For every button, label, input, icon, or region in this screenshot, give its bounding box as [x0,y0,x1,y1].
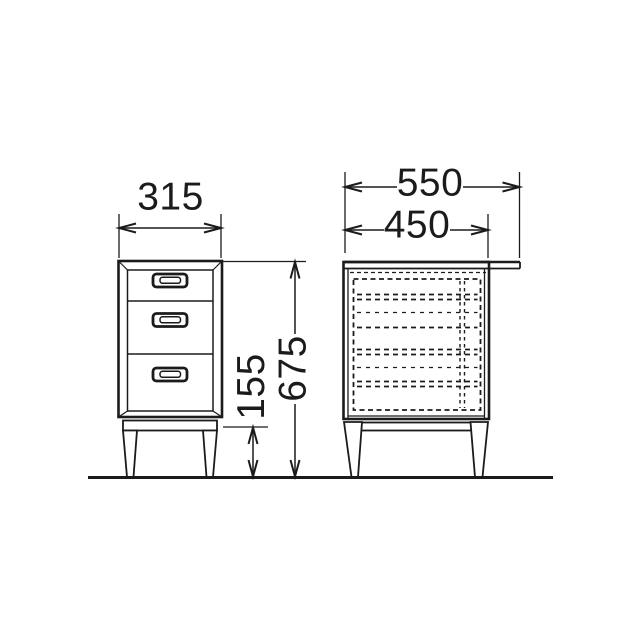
dim-body-depth-label: 450 [384,204,451,247]
side-top-panel [344,262,521,269]
front-leg-left [123,431,137,478]
dim-overall-depth-label: 550 [397,162,464,205]
front-base-rail [123,421,217,431]
dim-overall-height-label: 675 [272,335,315,402]
front-leg-right [203,431,217,478]
front-face-frame [128,270,214,411]
dim-front-width-label: 315 [137,176,204,219]
front-cabinet-outline [119,261,223,417]
side-body-outline [344,262,490,419]
drawer-handle-3 [153,368,187,381]
furniture-dimension-diagram: 315 550 450 675 155 [0,0,640,640]
hidden-drawer-box [354,279,481,410]
side-leg-right [471,422,489,477]
dim-front-width [119,214,221,258]
drawer-handle-1 [153,274,187,287]
drawing-canvas: 315 550 450 675 155 [0,0,640,640]
drawer-handle-2 [153,314,187,327]
dim-leg-height-label: 155 [230,353,273,420]
side-base-rail [348,423,484,431]
dim-leg-height [223,427,268,477]
hidden-drawer-lines [350,273,486,411]
side-view [344,262,521,477]
front-view [119,261,223,477]
side-leg-left [344,422,362,477]
frame-bevel-corners [119,261,223,417]
